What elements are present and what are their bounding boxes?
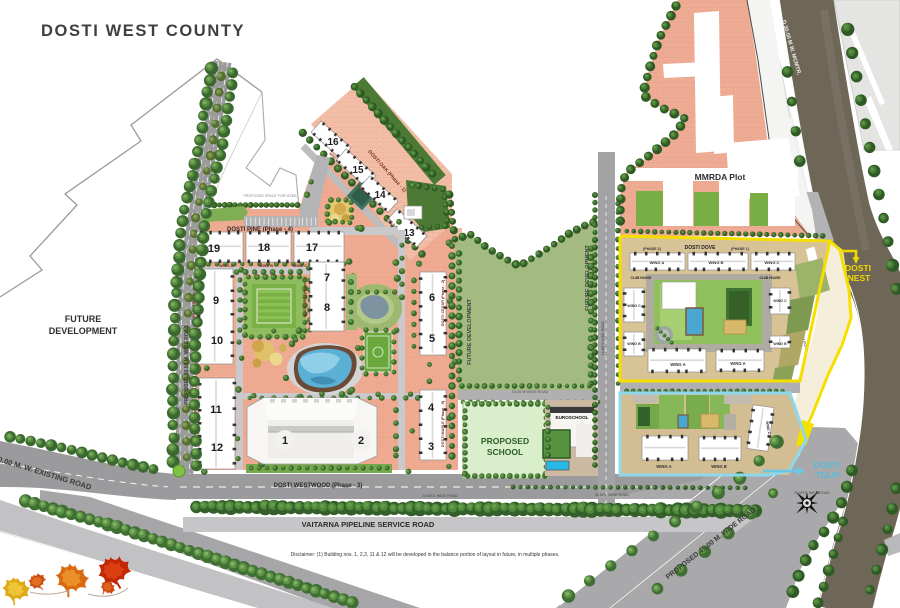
svg-text:13: 13 — [403, 228, 415, 239]
svg-text:FUTURE DEVELOPMENT: FUTURE DEVELOPMENT — [585, 245, 591, 311]
svg-text:WING A: WING A — [650, 260, 665, 265]
svg-text:WING B: WING B — [711, 464, 727, 469]
svg-text:DOSTI MAPLE (Phase - 8): DOSTI MAPLE (Phase - 8) — [441, 400, 445, 447]
svg-text:DOSTI DOVE: DOSTI DOVE — [685, 245, 717, 251]
svg-text:16: 16 — [327, 137, 339, 148]
svg-text:18: 18 — [258, 242, 270, 254]
svg-text:20 MTS. WIDE ROAD: 20 MTS. WIDE ROAD — [794, 491, 830, 495]
svg-text:18 MTS WIDE ROAD: 18 MTS WIDE ROAD — [601, 320, 605, 355]
svg-text:FUTURE: FUTURE — [65, 314, 102, 324]
svg-text:(PHASE 1): (PHASE 1) — [731, 247, 750, 251]
svg-text:12: 12 — [211, 442, 223, 454]
svg-text:3: 3 — [428, 441, 434, 453]
svg-text:14: 14 — [374, 190, 386, 201]
svg-text:1: 1 — [282, 435, 288, 447]
svg-text:20 MTL WIDE ROAD: 20 MTL WIDE ROAD — [595, 493, 629, 497]
svg-text:WING C: WING C — [293, 264, 307, 268]
svg-text:10: 10 — [211, 335, 223, 347]
svg-text:WING C: WING C — [627, 304, 641, 308]
svg-text:CLUB HOUSE: CLUB HOUSE — [630, 276, 651, 280]
svg-text:TULIP: TULIP — [816, 470, 841, 480]
svg-text:8: 8 — [324, 302, 330, 314]
svg-text:15: 15 — [352, 165, 364, 176]
svg-text:WING A: WING A — [730, 361, 745, 366]
svg-text:20 MTS. WIDE ROAD: 20 MTS. WIDE ROAD — [422, 494, 458, 498]
svg-text:DOSTI BIRCH (Phase - 5): DOSTI BIRCH (Phase - 5) — [303, 277, 307, 317]
svg-text:15.00 M WIDE ROAD: 15.00 M WIDE ROAD — [512, 390, 549, 394]
svg-text:EUROSCHOOL: EUROSCHOOL — [556, 415, 589, 420]
svg-text:9: 9 — [213, 295, 219, 307]
svg-text:WING B: WING B — [259, 264, 273, 268]
svg-text:5: 5 — [429, 333, 435, 345]
svg-text:(PHASE 2): (PHASE 2) — [643, 247, 662, 251]
svg-text:Disclaimer: (1) Building nos.: Disclaimer: (1) Building nos. 1, 2,3, 11… — [291, 552, 560, 558]
svg-text:DEVELOPMENT: DEVELOPMENT — [49, 326, 118, 336]
svg-text:PROPOSED: PROPOSED — [481, 436, 529, 446]
svg-text:N: N — [816, 490, 819, 495]
svg-text:DOSTI: DOSTI — [845, 263, 871, 273]
svg-text:WING C: WING C — [765, 260, 780, 265]
svg-text:6: 6 — [429, 292, 435, 304]
svg-text:DOSTI CEDAR (Phase - 2): DOSTI CEDAR (Phase - 2) — [441, 279, 445, 326]
svg-text:4: 4 — [428, 402, 435, 414]
svg-text:CLUB HOUSE: CLUB HOUSE — [759, 276, 780, 280]
svg-text:2: 2 — [358, 435, 364, 447]
svg-text:NEST: NEST — [848, 273, 871, 283]
svg-text:WING A: WING A — [656, 464, 671, 469]
svg-text:WING B: WING B — [627, 342, 641, 346]
svg-text:7: 7 — [324, 272, 330, 284]
svg-text:DOSTI WEST COUNTY: DOSTI WEST COUNTY — [41, 22, 245, 40]
svg-text:WING B: WING B — [773, 342, 787, 346]
svg-text:PROPOSED SPACE FOR MSEB: PROPOSED SPACE FOR MSEB — [243, 194, 297, 198]
svg-text:WING A: WING A — [670, 362, 685, 367]
svg-text:DOSTI WESTWOOD (Phase - 3): DOSTI WESTWOOD (Phase - 3) — [274, 483, 363, 489]
svg-text:DOSTI: DOSTI — [814, 460, 840, 470]
svg-text:VAITARNA PIPELINE SERVICE ROAD: VAITARNA PIPELINE SERVICE ROAD — [302, 520, 435, 529]
svg-text:WING A: WING A — [219, 264, 233, 268]
svg-text:17: 17 — [306, 242, 318, 254]
svg-text:MMRDA Plot: MMRDA Plot — [695, 172, 746, 182]
svg-text:19: 19 — [208, 243, 220, 255]
svg-text:11: 11 — [210, 404, 222, 416]
svg-text:WING C: WING C — [773, 299, 787, 303]
svg-text:SCHOOL: SCHOOL — [487, 447, 523, 457]
svg-text:WING B: WING B — [709, 260, 724, 265]
svg-text:FUTURE DEVELOPMENT: FUTURE DEVELOPMENT — [467, 299, 473, 365]
svg-text:PROPOSED 30.00 M. WIDE ROAD: PROPOSED 30.00 M. WIDE ROAD — [184, 325, 190, 405]
